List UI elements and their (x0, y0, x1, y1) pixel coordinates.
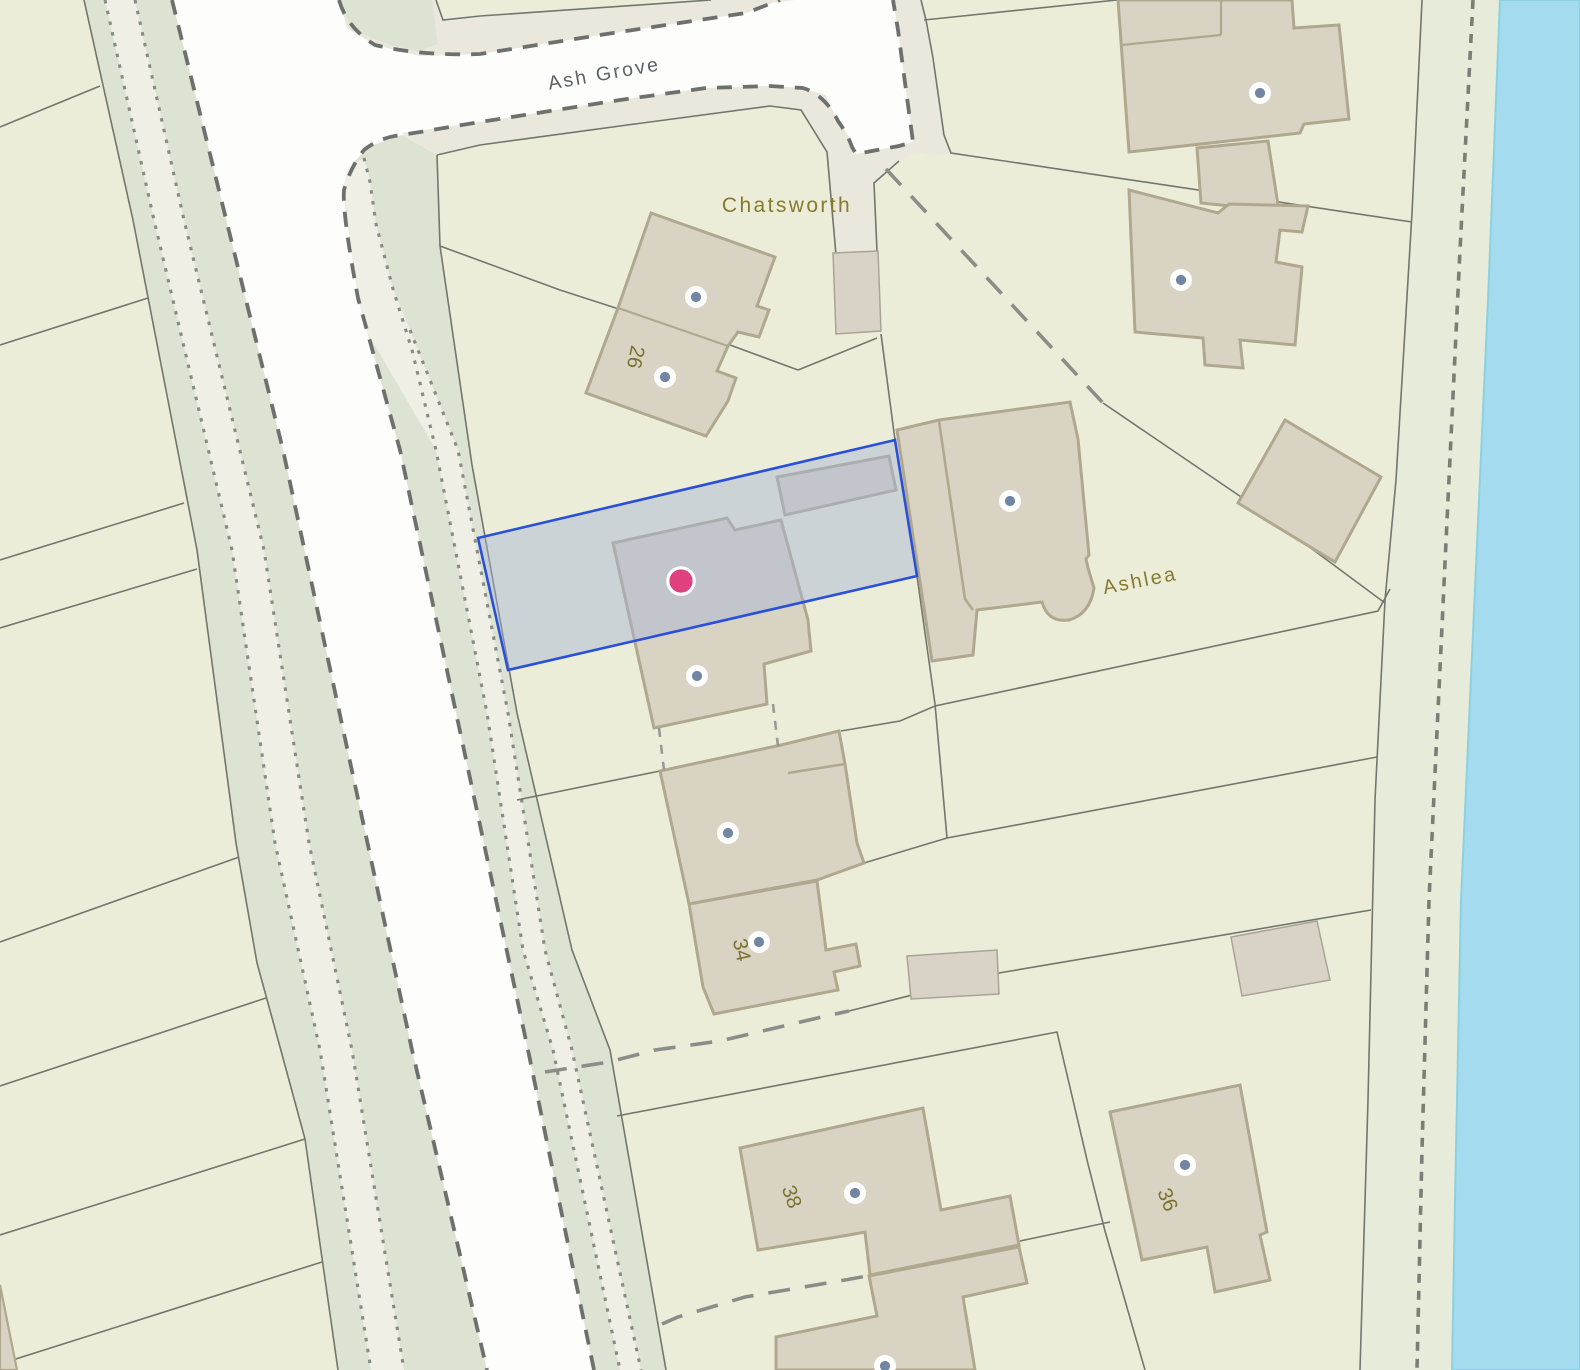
svg-text:Chatsworth: Chatsworth (722, 194, 852, 217)
svg-text:26: 26 (622, 344, 649, 371)
svg-text:34: 34 (728, 936, 755, 963)
